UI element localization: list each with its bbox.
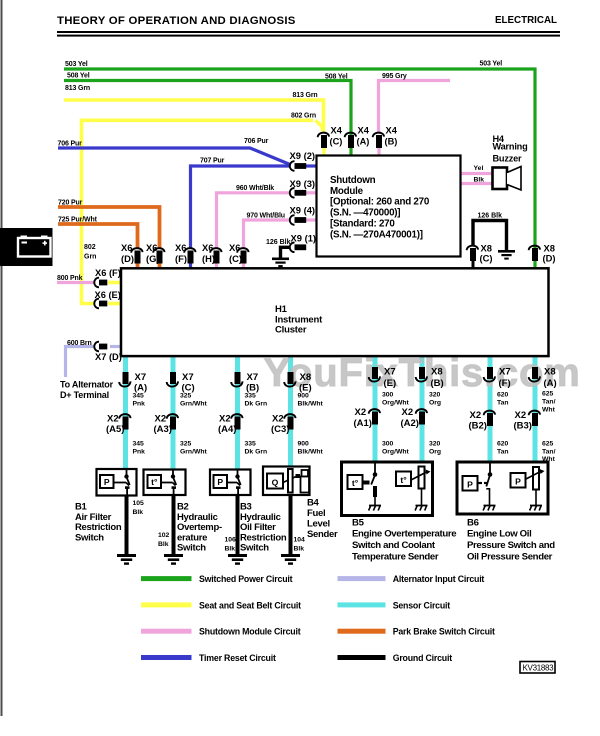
svg-text:970 Wht/Blu: 970 Wht/Blu	[247, 213, 285, 220]
svg-text:Switch: Switch	[177, 542, 206, 553]
svg-text:503 Yel: 503 Yel	[65, 61, 88, 68]
svg-text:Pressure Switch and: Pressure Switch and	[467, 540, 555, 551]
svg-text:THEORY OF OPERATION AND DIAGNO: THEORY OF OPERATION AND DIAGNOSIS	[57, 15, 296, 27]
svg-text:X2: X2	[470, 410, 482, 421]
svg-text:Org: Org	[429, 400, 441, 407]
svg-text:Warning: Warning	[493, 142, 528, 152]
svg-text:X6: X6	[175, 242, 186, 253]
svg-text:600 Brn: 600 Brn	[67, 340, 92, 347]
svg-text:(G): (G)	[146, 253, 160, 264]
svg-text:Yel: Yel	[474, 165, 484, 172]
svg-text:Grn/Wht: Grn/Wht	[180, 448, 208, 455]
svg-text:Engine Overtemperature: Engine Overtemperature	[352, 529, 456, 540]
svg-text:(H): (H)	[202, 253, 215, 264]
svg-text:900: 900	[298, 393, 310, 400]
svg-text:508 Yel: 508 Yel	[325, 74, 348, 81]
svg-text:Sensor Circuit: Sensor Circuit	[393, 600, 451, 610]
svg-text:Blk: Blk	[158, 541, 169, 548]
svg-text:P: P	[515, 476, 521, 486]
svg-text:ELECTRICAL: ELECTRICAL	[495, 15, 557, 26]
svg-text:D+ Terminal: D+ Terminal	[60, 390, 109, 400]
svg-text:Org/Wht: Org/Wht	[382, 400, 410, 407]
svg-text:Grn/Wht: Grn/Wht	[180, 401, 208, 408]
svg-text:X8: X8	[544, 367, 556, 378]
svg-text:720 Pur: 720 Pur	[58, 200, 83, 207]
svg-text:KV31883: KV31883	[523, 664, 555, 673]
svg-text:104: 104	[294, 537, 306, 544]
svg-text:(C): (C)	[330, 136, 343, 146]
svg-text:B4: B4	[307, 498, 320, 509]
svg-text:620: 620	[497, 392, 509, 399]
svg-text:P: P	[217, 477, 223, 487]
svg-text:X7: X7	[499, 367, 511, 378]
svg-text:X6: X6	[229, 242, 240, 253]
svg-text:Cluster: Cluster	[275, 325, 307, 336]
svg-text:X4: X4	[386, 126, 398, 136]
svg-text:Org: Org	[429, 448, 441, 455]
svg-text:345: 345	[133, 441, 145, 448]
svg-text:(B3): (B3)	[514, 421, 532, 432]
svg-text:B6: B6	[467, 517, 479, 528]
svg-text:X4: X4	[331, 126, 343, 136]
svg-text:Buzzer: Buzzer	[493, 153, 523, 163]
svg-text:Ground Circuit: Ground Circuit	[393, 653, 453, 663]
svg-text:(A): (A)	[544, 378, 557, 389]
svg-text:Timer Reset Circuit: Timer Reset Circuit	[199, 653, 276, 663]
svg-text:Tan: Tan	[497, 400, 509, 407]
svg-text:[Optional: 260 and 270: [Optional: 260 and 270	[330, 197, 430, 208]
svg-text:(B): (B)	[385, 136, 398, 146]
svg-text:(B): (B)	[431, 378, 444, 389]
svg-text:Shutdown: Shutdown	[330, 175, 376, 186]
svg-text:(F): (F)	[499, 378, 511, 389]
svg-text:Tan: Tan	[497, 448, 509, 455]
svg-text:Blk: Blk	[225, 546, 236, 553]
svg-text:X8: X8	[431, 367, 443, 378]
svg-text:Switch and Coolant: Switch and Coolant	[352, 540, 436, 551]
svg-text:Org/Wht: Org/Wht	[382, 448, 410, 455]
svg-text:t°: t°	[151, 477, 158, 487]
svg-text:Oil Pressure Sender: Oil Pressure Sender	[467, 552, 553, 563]
svg-text:B1: B1	[75, 502, 88, 513]
svg-text:106: 106	[225, 537, 237, 544]
svg-text:802 Grn: 802 Grn	[291, 113, 316, 120]
svg-text:Dk Grn: Dk Grn	[245, 448, 268, 455]
svg-text:X4: X4	[358, 126, 370, 136]
svg-text:995 Gry: 995 Gry	[382, 73, 407, 80]
svg-text:320: 320	[429, 392, 441, 399]
svg-text:(F): (F)	[175, 253, 187, 264]
svg-text:X6 (F): X6 (F)	[95, 268, 121, 278]
svg-text:335: 335	[245, 393, 257, 400]
svg-text:X2: X2	[402, 407, 414, 418]
svg-text:(S.N. —470000)]: (S.N. —470000)]	[330, 208, 400, 219]
svg-text:Temperature Sender: Temperature Sender	[352, 552, 439, 563]
svg-text:B5: B5	[352, 517, 365, 528]
svg-text:(S.N. —270A470001)]: (S.N. —270A470001)]	[330, 229, 423, 240]
svg-text:Grn: Grn	[84, 254, 96, 261]
svg-text:800 Pnk: 800 Pnk	[57, 275, 83, 282]
svg-text:(A3): (A3)	[154, 424, 172, 435]
svg-text:Seat and Seat Belt Circuit: Seat and Seat Belt Circuit	[199, 600, 301, 610]
svg-text:Switched Power Circuit: Switched Power Circuit	[199, 574, 293, 584]
svg-text:X7: X7	[384, 367, 396, 378]
svg-text:Blk/Wht: Blk/Wht	[298, 401, 324, 408]
svg-text:Dk Grn: Dk Grn	[245, 401, 268, 408]
svg-text:X6: X6	[202, 242, 213, 253]
svg-text:(A4): (A4)	[218, 424, 236, 435]
svg-text:X6 (E): X6 (E)	[95, 290, 121, 300]
svg-text:Blk/Wht: Blk/Wht	[298, 448, 324, 455]
svg-text:(B2): (B2)	[469, 421, 487, 432]
svg-text:707 Pur: 707 Pur	[200, 158, 225, 165]
svg-text:B3: B3	[240, 502, 252, 513]
svg-text:(D): (D)	[543, 253, 556, 264]
svg-text:(C3): (C3)	[271, 424, 289, 435]
svg-text:Module: Module	[330, 186, 364, 197]
svg-text:Sender: Sender	[307, 529, 338, 540]
svg-text:t°: t°	[352, 478, 359, 488]
svg-text:960 Wht/Blk: 960 Wht/Blk	[236, 185, 274, 192]
svg-text:P: P	[104, 477, 110, 487]
svg-text:Blk: Blk	[474, 177, 485, 184]
svg-text:X6: X6	[146, 242, 157, 253]
svg-text:Tan/: Tan/	[542, 448, 556, 455]
svg-text:508 Yel: 508 Yel	[67, 73, 90, 80]
svg-text:[Standard: 270: [Standard: 270	[330, 218, 395, 229]
svg-text:Shutdown Module Circuit: Shutdown Module Circuit	[199, 627, 301, 637]
svg-text:300: 300	[382, 392, 394, 399]
svg-text:(A5): (A5)	[106, 424, 124, 435]
svg-text:725 Pur/Wht: 725 Pur/Wht	[58, 217, 98, 224]
svg-text:620: 620	[497, 441, 509, 448]
svg-text:126 Blk: 126 Blk	[266, 239, 291, 246]
svg-text:625: 625	[542, 391, 554, 398]
svg-text:X9 (4): X9 (4)	[290, 204, 316, 215]
svg-text:900: 900	[298, 441, 310, 448]
svg-text:X2: X2	[355, 407, 367, 418]
svg-text:Switch: Switch	[240, 542, 269, 553]
svg-text:t°: t°	[400, 475, 407, 485]
svg-text:Blk: Blk	[294, 546, 305, 553]
svg-text:X6: X6	[121, 242, 132, 253]
svg-text:320: 320	[429, 441, 441, 448]
svg-text:Pnk: Pnk	[133, 401, 146, 408]
svg-text:102: 102	[158, 532, 170, 539]
svg-text:126 Blk: 126 Blk	[478, 213, 503, 220]
svg-text:105: 105	[133, 500, 145, 507]
svg-text:Park Brake Switch Circuit: Park Brake Switch Circuit	[393, 627, 495, 637]
svg-text:(E): (E)	[384, 378, 397, 389]
svg-text:Blk: Blk	[133, 509, 144, 516]
svg-text:P: P	[467, 479, 473, 489]
svg-text:625: 625	[542, 441, 554, 448]
svg-text:(C): (C)	[480, 253, 493, 264]
svg-text:Wht: Wht	[542, 407, 556, 414]
svg-text:706 Pur: 706 Pur	[58, 141, 83, 148]
svg-text:Engine Low Oil: Engine Low Oil	[467, 529, 531, 540]
svg-text:802: 802	[84, 244, 96, 251]
svg-text:Level: Level	[307, 519, 330, 530]
svg-text:335: 335	[245, 441, 257, 448]
svg-text:B2: B2	[177, 502, 189, 513]
svg-text:Tan/: Tan/	[542, 399, 556, 406]
svg-text:Pnk: Pnk	[133, 448, 146, 455]
svg-text:X9 (3): X9 (3)	[290, 178, 316, 189]
svg-text:Q: Q	[272, 477, 279, 487]
svg-text:325: 325	[180, 393, 192, 400]
svg-text:(C): (C)	[229, 253, 242, 264]
svg-text:813 Grn: 813 Grn	[65, 85, 90, 92]
svg-text:X9 (2): X9 (2)	[290, 150, 316, 161]
svg-text:(D): (D)	[121, 253, 134, 264]
svg-text:300: 300	[382, 441, 394, 448]
svg-text:X9 (1): X9 (1)	[291, 232, 317, 243]
svg-text:Alternator Input Circuit: Alternator Input Circuit	[393, 574, 485, 584]
svg-text:(A): (A)	[357, 136, 370, 146]
svg-text:503 Yel: 503 Yel	[480, 61, 503, 68]
svg-text:(A1): (A1)	[354, 418, 372, 429]
svg-text:To Alternator: To Alternator	[60, 380, 114, 390]
svg-text:325: 325	[180, 441, 192, 448]
svg-text:(A2): (A2)	[401, 418, 419, 429]
svg-text:813 Grn: 813 Grn	[293, 92, 318, 99]
svg-text:Switch: Switch	[75, 532, 104, 543]
svg-text:X2: X2	[515, 410, 527, 421]
svg-text:345: 345	[133, 393, 145, 400]
svg-text:X7 (D): X7 (D)	[95, 352, 122, 362]
svg-text:Fuel: Fuel	[307, 508, 325, 519]
svg-text:706 Pur: 706 Pur	[244, 138, 269, 145]
